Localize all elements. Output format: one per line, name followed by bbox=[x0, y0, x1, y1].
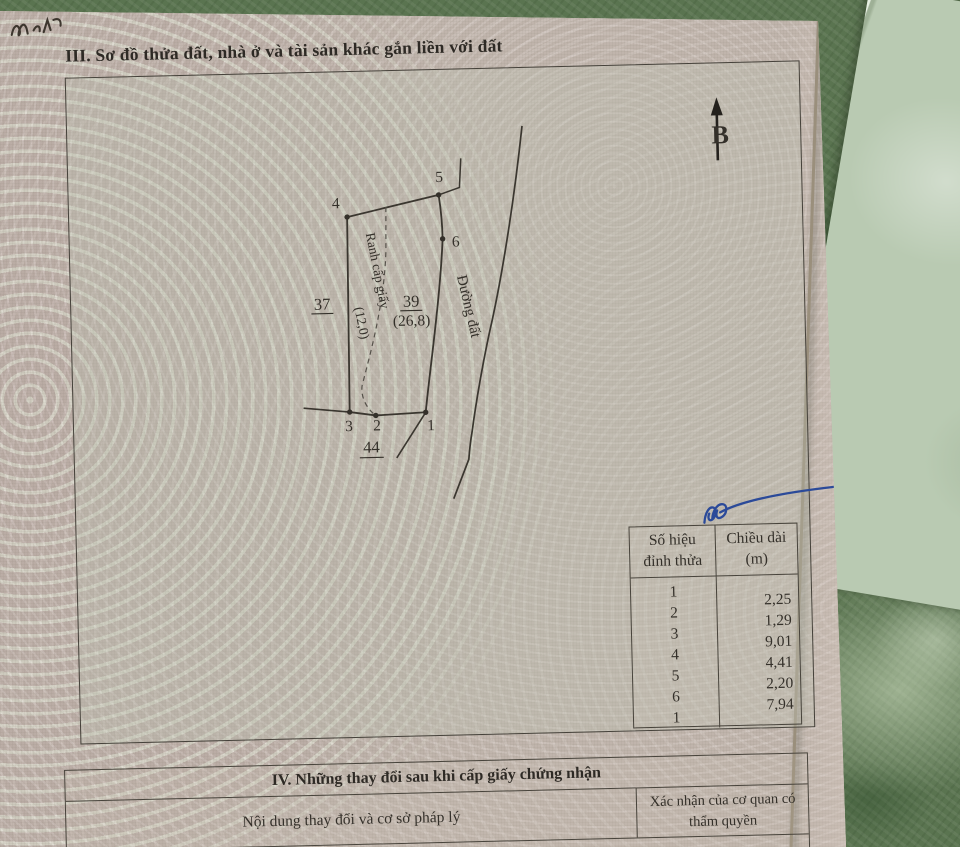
boundary-note-label: Ranh cấp giấy bbox=[363, 231, 393, 310]
pen-scribble bbox=[7, 10, 86, 44]
length-cell: 9,01 bbox=[718, 631, 792, 654]
section-iv-table: IV. Những thay đổi sau khi cấp giấy chứn… bbox=[64, 752, 811, 847]
vertex-cell: 4 bbox=[632, 643, 717, 666]
length-cell: 1,29 bbox=[717, 610, 791, 633]
boundary-length-label: (12,0) bbox=[351, 306, 372, 341]
table-header-row: Số hiệu đỉnh thửa Chiều dài (m) bbox=[629, 524, 797, 579]
vertex-cell: 3 bbox=[632, 622, 717, 645]
header-line: đỉnh thửa bbox=[643, 551, 702, 573]
north-label: B bbox=[711, 120, 729, 149]
road-label: Đường đất bbox=[453, 273, 484, 340]
parcel-44-underline bbox=[360, 457, 384, 458]
vertex-label-4: 4 bbox=[332, 195, 340, 212]
vertex-cell: 1 bbox=[631, 580, 716, 603]
north-arrow-icon: B bbox=[710, 97, 729, 160]
vertex-label-6: 6 bbox=[452, 233, 460, 250]
vertex-point bbox=[436, 192, 442, 198]
parcel-37-underline bbox=[311, 313, 333, 314]
table-header-length: Chiều dài (m) bbox=[715, 524, 797, 576]
section-iii-title: III. Sơ đồ thửa đất, nhà ở và tài sản kh… bbox=[65, 35, 503, 66]
parcel-39-area: (26,8) bbox=[393, 312, 431, 330]
vertex-cell: 5 bbox=[633, 664, 718, 687]
table-header-vertex: Số hiệu đỉnh thửa bbox=[629, 525, 716, 577]
length-cell: 4,41 bbox=[718, 652, 792, 675]
certificate-paper: III. Sơ đồ thửa đất, nhà ở và tài sản kh… bbox=[0, 0, 960, 847]
header-line: Số hiệu bbox=[649, 530, 696, 552]
vertex-label-2: 2 bbox=[373, 417, 381, 434]
header-line: Chiều dài bbox=[726, 528, 786, 550]
length-cell: 2,25 bbox=[717, 589, 791, 612]
table-body: 1 2 3 4 5 6 1 2,25 1,29 9,01 4,41 2,20 bbox=[631, 575, 802, 730]
vertex-point bbox=[344, 214, 350, 220]
vertex-length-table: Số hiệu đỉnh thửa Chiều dài (m) 1 2 3 4 … bbox=[628, 523, 802, 729]
section-iv-right-header: Xác nhận của cơ quan có thẩm quyền bbox=[637, 784, 809, 837]
length-cell: 7,94 bbox=[719, 694, 793, 717]
vertex-point bbox=[440, 236, 446, 242]
vertex-label-5: 5 bbox=[435, 169, 443, 186]
vertex-point bbox=[347, 409, 353, 415]
photo-background: III. Sơ đồ thửa đất, nhà ở và tài sản kh… bbox=[0, 0, 960, 847]
vertex-label-1: 1 bbox=[427, 417, 435, 434]
printed-content: III. Sơ đồ thửa đất, nhà ở và tài sản kh… bbox=[0, 0, 960, 847]
length-cell: 2,20 bbox=[719, 673, 793, 696]
road-line bbox=[445, 126, 531, 499]
left-extension-line bbox=[304, 407, 350, 413]
vertex-sequence-column: 1 2 3 4 5 6 1 bbox=[631, 576, 721, 729]
parcel-boundary-line bbox=[345, 195, 447, 416]
parcel-39-label: 39 bbox=[403, 291, 420, 310]
vertex-cell: 1 bbox=[634, 706, 719, 729]
parcel-39-underline bbox=[400, 310, 422, 311]
right-extension-line bbox=[396, 412, 427, 458]
vertex-cell: 6 bbox=[633, 685, 718, 708]
header-line: (m) bbox=[745, 549, 768, 570]
parcel-44-label: 44 bbox=[363, 437, 380, 456]
length-values-column: 2,25 1,29 9,01 4,41 2,20 7,94 bbox=[717, 575, 802, 728]
vertex-cell: 2 bbox=[631, 601, 716, 624]
vertex-label-3: 3 bbox=[345, 418, 353, 435]
parcel-37-label: 37 bbox=[314, 294, 331, 313]
